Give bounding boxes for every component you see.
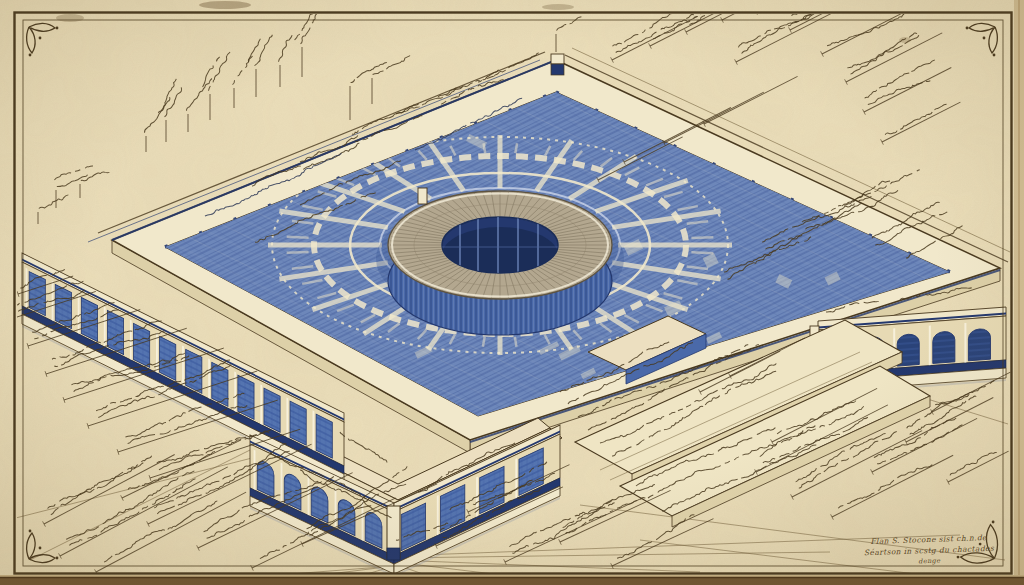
blueprint-drawing: [0, 0, 1024, 585]
title-block: Flan S. Stocone sist ch.n.de Séartson in…: [839, 531, 1018, 569]
blueprint-page: Flan S. Stocone sist ch.n.de Séartson in…: [0, 0, 1024, 585]
corner-pier: [387, 506, 400, 560]
